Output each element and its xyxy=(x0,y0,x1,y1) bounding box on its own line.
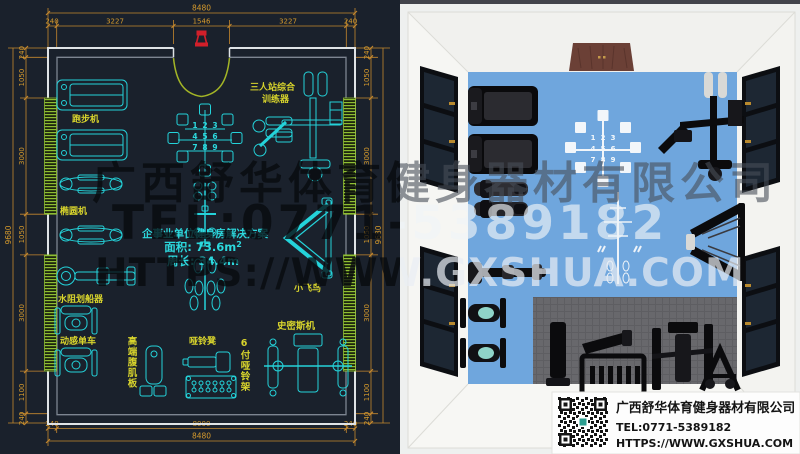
solution-title: 企事业单位健身房解决方案 xyxy=(141,227,268,240)
dim-left-total: 9680 xyxy=(4,225,13,244)
dumbbell-bench-label: 哑铃凳 xyxy=(189,335,217,347)
elliptical-label: 椭圆机 xyxy=(60,205,87,217)
treadmill-label: 跑步机 xyxy=(72,113,99,125)
treadmill-3d xyxy=(468,86,538,126)
rack-numbers: 1 2 3 4 5 6 7 8 9 xyxy=(192,121,217,152)
company-name: 广西舒华体育健身器材有限公司 xyxy=(616,400,795,416)
rack-number: 5 xyxy=(202,132,207,141)
dim-right-total: 9680 xyxy=(374,225,383,244)
dim-bottom-total: 8480 xyxy=(192,432,211,441)
dim-left-5: 1100 xyxy=(18,383,26,401)
floor-number: 2 xyxy=(601,134,606,142)
qr-center-logo xyxy=(580,419,587,426)
floor-number: 4 xyxy=(591,145,596,153)
dim-top-2: 1546 xyxy=(193,18,211,26)
render-3d-panel: 1 2 3 4 5 6 7 8 9 xyxy=(400,0,800,454)
dim-right-2: 3000 xyxy=(363,147,371,165)
dumbbell-rack-label: 6付哑铃架 xyxy=(239,338,249,392)
cad-drawing: 8480 240 3227 1546 3227 240 9680 240 105… xyxy=(0,0,400,454)
dim-left-1: 1050 xyxy=(18,69,26,87)
rack-number: 6 xyxy=(212,132,217,141)
cad-floorplan-panel: 8480 240 3227 1546 3227 240 9680 240 105… xyxy=(0,0,400,454)
dim-right-3: 1050 xyxy=(363,226,371,244)
top-strip xyxy=(400,0,800,4)
window-right-upper xyxy=(344,98,356,214)
rack-number: 7 xyxy=(192,143,197,152)
company-url: HTTPS://WWW.GXSHUA.COM xyxy=(616,437,793,450)
floor-number: 9 xyxy=(611,156,616,164)
cad-background xyxy=(0,0,400,454)
spin-bike-label: 动感单车 xyxy=(60,335,96,347)
dim-left-6: 240 xyxy=(18,412,26,425)
dim-right-1: 1050 xyxy=(363,69,371,87)
multi-station-label-1: 三人站综合 xyxy=(250,81,296,93)
ab-board-label: 高端腹肌板 xyxy=(126,336,136,389)
dim-top-1: 3227 xyxy=(106,18,124,26)
dim-top-4: 240 xyxy=(344,18,357,26)
dim-right-5: 1100 xyxy=(363,383,371,401)
company-tel: TEL:0771-5389182 xyxy=(616,421,731,434)
fly-label: 小飞鸟 xyxy=(293,282,321,294)
floor-number: 7 xyxy=(591,156,596,164)
qr-code xyxy=(558,397,608,447)
rack-number: 3 xyxy=(212,121,217,130)
window-3d xyxy=(420,246,458,377)
dim-left-4: 3000 xyxy=(18,304,26,322)
dim-right-6: 240 xyxy=(363,412,371,425)
render-3d: 1 2 3 4 5 6 7 8 9 xyxy=(400,0,800,454)
door-handle xyxy=(603,56,606,59)
rower-label: 水阻划船器 xyxy=(58,293,104,305)
solution-area: 面积: 73.6m2 xyxy=(164,240,242,254)
dim-left-0: 240 xyxy=(18,46,26,59)
multi-station-label-2: 训练器 xyxy=(262,93,290,105)
floor-rack-numbers: 1 2 3 4 5 6 7 8 9 xyxy=(591,134,616,164)
floor-number: 6 xyxy=(611,145,616,153)
rack-number: 1 xyxy=(192,121,197,130)
door-handle xyxy=(598,56,601,59)
info-box: 广西舒华体育健身器材有限公司 TEL:0771-5389182 HTTPS://… xyxy=(552,392,800,454)
floor-number: 1 xyxy=(591,134,596,142)
dim-top-0: 240 xyxy=(45,18,58,26)
window-3d xyxy=(420,66,458,193)
floor-number: 5 xyxy=(601,145,606,153)
elliptical-3d xyxy=(474,180,528,198)
solution-area-value: 面积: 73.6m xyxy=(164,240,236,254)
treadmill-3d xyxy=(468,134,538,174)
dim-right-4: 3000 xyxy=(363,304,371,322)
solution-perimeter: 周长: 34.4m xyxy=(167,254,239,268)
dim-left-2: 3000 xyxy=(18,147,26,165)
rack-number: 2 xyxy=(202,121,207,130)
design-sheet: 8480 240 3227 1546 3227 240 9680 240 105… xyxy=(0,0,800,454)
rack-number: 8 xyxy=(202,143,207,152)
rack-number: 9 xyxy=(212,143,217,152)
dim-top-total: 8480 xyxy=(192,4,211,13)
window-left-upper xyxy=(45,98,57,214)
dim-right-0: 240 xyxy=(363,46,371,59)
window-right-lower xyxy=(344,255,356,371)
rack-number: 4 xyxy=(192,132,197,141)
dim-top-3: 3227 xyxy=(279,18,297,26)
window-3d xyxy=(742,66,780,193)
solution-area-sup: 2 xyxy=(236,240,242,249)
smith-label: 史密斯机 xyxy=(277,320,316,332)
entry-door xyxy=(569,43,634,71)
dim-left-3: 1050 xyxy=(18,226,26,244)
floor-number: 8 xyxy=(601,156,606,164)
floor-number: 3 xyxy=(611,134,616,142)
window-3d xyxy=(742,246,780,377)
elliptical-3d xyxy=(474,200,528,218)
